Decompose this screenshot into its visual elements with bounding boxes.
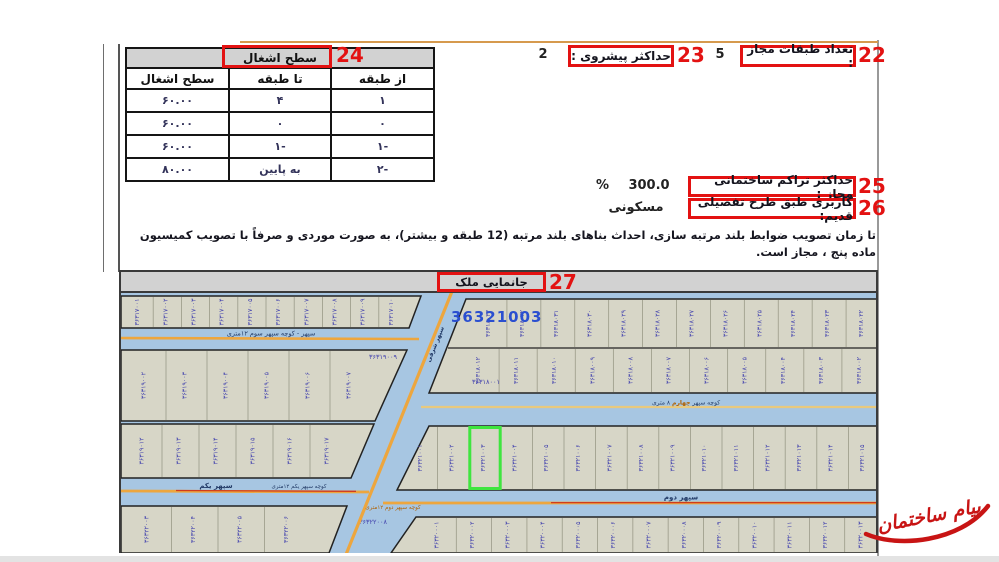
max-projection-value: 2 [528, 47, 558, 62]
highlight-parcel-big-label: 36321003 [451, 308, 543, 326]
parcel-number: ۳۶۳۱۸۰۱۰ [551, 357, 558, 384]
parcel-number: ۳۶۳۲۲۰۰۴ [190, 516, 197, 543]
callout-24: 24 [336, 43, 364, 67]
field-old-plan-usage-label: کاربری طبق طرح تفصیلی قدیم: [688, 198, 856, 219]
occupancy-cell: ۰ [229, 112, 331, 135]
parcel-number: ۳۶۳۲۱۰۱۱ [733, 444, 740, 471]
parcel-number: ۳۶۳۲۰۰۰۲ [469, 521, 476, 549]
parcel-number: ۳۶۳۱۹۰۱۶ [287, 437, 294, 464]
parcel-number: ۳۶۳۱۸۰۳۱ [553, 310, 560, 337]
parcel-number: ۳۶۳۱۹۰۱۵ [250, 437, 257, 465]
report-page: سطح اشغال از طبقه تا طبقه سطح اشغال ۱۴۶۰… [0, 0, 999, 562]
parcel-number: ۳۶۳۲۰۰۰۱ [434, 521, 441, 548]
parcel-number: ۳۶۳۱۸۰۲۶ [722, 310, 729, 337]
parcel-number: ۳۶۳۱۸۰۱۱ [513, 357, 520, 384]
parcel-number: ۳۶۳۲۱۰۰۹ [670, 444, 677, 472]
col-occupancy: سطح اشغال [126, 68, 229, 89]
parcel-number: ۳۶۳۱۷۰۰۶ [275, 298, 282, 325]
parcel-number: ۳۶۳۱۹۰۰۴ [223, 372, 230, 399]
watermark: پیام ساختمان [860, 486, 996, 552]
parcel-number: ۳۶۳۱۷۰۰۲ [162, 298, 169, 326]
old-plan-usage-label-text: کاربری طبق طرح تفصیلی قدیم: [691, 195, 853, 223]
parcel-number: ۳۶۳۲۱۰۱۳ [796, 444, 803, 472]
street-dovom-sublabel: کوچه سپهر دوم ۱۲متری [365, 504, 421, 511]
floors-allowed-label-text: تعداد طبقات مجاز : [743, 42, 853, 70]
parcel-number: ۳۶۳۲۱۰۱۰ [701, 444, 708, 471]
callout-box-occupancy-title [222, 45, 332, 68]
street-dovom-label: سپهر دوم [664, 494, 698, 502]
left-inner-border [118, 44, 120, 272]
parcel-number: ۳۶۳۱۸۰۰۳ [818, 356, 825, 384]
callout-23: 23 [677, 43, 705, 67]
parcel-number: ۳۶۳۲۱۰۰۲ [448, 444, 455, 472]
occupancy-cell: ۱- [229, 135, 331, 158]
occupancy-cell: ۶۰.۰۰ [126, 135, 229, 158]
parcel-number: ۳۶۳۱۸۰۰۴ [780, 357, 787, 384]
parcel-number: ۳۶۳۲۰۰۰۸ [681, 521, 688, 549]
parcel-number: ۳۶۳۲۱۰۱۲ [764, 444, 771, 472]
parcel-number: ۳۶۳۲۱۰۰۱ [417, 444, 424, 471]
highrise-note: تا زمان تصویب ضوابط بلند مرتبه سازی، احد… [125, 227, 876, 261]
field-floors-allowed-label: تعداد طبقات مجاز : [740, 45, 856, 67]
parcel-number: ۳۶۳۱۷۰۰۱ [134, 298, 141, 325]
callout-22: 22 [858, 43, 886, 67]
occupancy-cell: ۲- [331, 158, 434, 181]
parcel-block [121, 506, 347, 553]
parcel-block [391, 517, 878, 553]
parcel-number: ۳۶۳۱۸۰۲۸ [655, 309, 662, 337]
parcel-number: ۳۶۳۱۹۰۱۴ [213, 437, 220, 464]
parcel-number: ۳۶۳۲۱۰۰۳ [480, 444, 487, 472]
parcel-number: ۳۶۳۱۸۰۲۲ [858, 309, 865, 337]
site-plan-svg: ۳۶۳۱۷۰۰۱۳۶۳۱۷۰۰۲۳۶۳۱۷۰۰۳۳۶۳۱۷۰۰۴۳۶۳۱۷۰۰۵… [121, 293, 878, 553]
occupancy-cell: ۴ [229, 89, 331, 112]
parcel-number: ۳۶۳۲۱۰۰۵ [543, 444, 550, 472]
parcel-number: ۳۶۳۱۹۰۰۶ [305, 372, 312, 399]
parcel-number: ۳۶۳۱۸۰۲۴ [790, 310, 797, 337]
occupancy-cell: ۶۰.۰۰ [126, 89, 229, 112]
block-corner-label: ۳۶۳۱۸۰۰۱ [472, 378, 500, 386]
site-plan-section: ۳۶۳۱۷۰۰۱۳۶۳۱۷۰۰۲۳۶۳۱۷۰۰۳۳۶۳۱۷۰۰۴۳۶۳۱۷۰۰۵… [119, 270, 878, 553]
parcel-number: ۳۶۳۲۰۰۰۶ [610, 521, 617, 548]
parcel-number: ۳۶۳۲۰۰۱۱ [787, 521, 794, 548]
parcel-number: ۳۶۳۱۷۰۰۵ [247, 298, 254, 326]
watermark-text: پیام ساختمان [875, 495, 983, 537]
col-from-floor: از طبقه [331, 68, 434, 89]
parcel-number: ۳۶۳۲۰۰۰۵ [575, 521, 582, 549]
parcel-number: ۳۶۳۱۸۰۰۹ [589, 356, 596, 384]
block-corner-label: ۳۶۳۱۹۰۰۹ [369, 353, 397, 361]
parcel-number: ۳۶۳۲۲۰۰۵ [236, 515, 243, 543]
parcel-number: ۳۶۳۲۱۰۱۵ [859, 444, 866, 472]
callout-box-site-plan-title: جانمایی ملک [437, 272, 546, 292]
street-chaharom-label: کوچه سپهر چهارم ۸ متری [652, 400, 720, 407]
parcel-number: ۳۶۳۱۷۰۰۹ [360, 298, 367, 326]
occupancy-cell: به پایین [229, 158, 331, 181]
parcel-number: ۳۶۳۱۸۰۲۹ [621, 309, 628, 337]
parcel-number: ۳۶۳۱۷۰۱۰ [388, 298, 395, 325]
occupancy-cell: ۰ [331, 112, 434, 135]
max-density-unit: % [596, 178, 609, 193]
occupancy-cell: ۸۰.۰۰ [126, 158, 229, 181]
street-yekom-redline [176, 491, 356, 492]
occupancy-table-body: ۱۴۶۰.۰۰۰۰۶۰.۰۰۱-۱-۶۰.۰۰۲-به پایین۸۰.۰۰ [126, 89, 434, 181]
max-projection-label-text: حداکثر پیشروی : [571, 49, 671, 63]
street-yekom-sublabel: کوچه سپهر یکم ۱۲متری [272, 483, 327, 490]
old-plan-usage-value: مسکونی [606, 200, 666, 215]
callout-25: 25 [858, 174, 886, 198]
callout-26: 26 [858, 196, 886, 220]
parcel-number: ۳۶۳۱۸۰۲۵ [756, 309, 763, 337]
parcel-number: ۳۶۳۱۹۰۱۲ [139, 437, 146, 465]
parcel-number: ۳۶۳۲۱۰۰۶ [575, 444, 582, 471]
occupancy-cell: ۱ [331, 89, 434, 112]
parcel-number: ۳۶۳۲۰۰۰۷ [646, 521, 653, 549]
parcel-number: ۳۶۳۲۰۰۱۲ [822, 521, 829, 549]
parcel-number: ۳۶۳۲۱۰۰۴ [512, 444, 519, 471]
parcel-number: ۳۶۳۱۷۰۰۴ [219, 298, 226, 325]
parcel-number: ۳۶۳۱۸۰۲۳ [824, 309, 831, 337]
parcel-number: ۳۶۳۱۹۰۰۵ [264, 371, 271, 399]
parcel-number: ۳۶۳۱۹۰۱۷ [324, 437, 331, 465]
parcel-number: ۳۶۳۱۸۰۰۲ [856, 356, 863, 384]
max-density-value: 300.0 [628, 178, 670, 193]
site-plan-map: ۳۶۳۱۷۰۰۱۳۶۳۱۷۰۰۲۳۶۳۱۷۰۰۳۳۶۳۱۷۰۰۴۳۶۳۱۷۰۰۵… [119, 293, 878, 553]
parcel-number: ۳۶۳۱۹۰۰۳ [182, 371, 189, 399]
parcel-number: ۳۶۳۲۱۰۰۷ [606, 444, 613, 472]
parcel-number: ۳۶۳۲۲۰۰۳ [143, 515, 150, 543]
occupancy-cell: ۱- [331, 135, 434, 158]
parcel-number: ۳۶۳۲۰۰۰۳ [504, 521, 511, 549]
parcel-number: ۳۶۳۱۹۰۱۳ [176, 437, 183, 465]
parcel-number: ۳۶۳۲۲۰۰۶ [283, 516, 290, 543]
parcel-number: ۳۶۳۲۱۰۱۴ [828, 444, 835, 471]
street-sevvom-label: سپهر - کوچه سپهر سوم ۱۲متری [227, 330, 316, 338]
callout-27: 27 [549, 270, 577, 294]
block-corner-label: ۳۶۳۲۲۰۰۸ [359, 518, 387, 526]
parcel-number: ۳۶۳۲۰۰۱۰ [751, 521, 758, 548]
parcel-number: ۳۶۳۲۰۰۰۹ [716, 521, 723, 549]
parcel-number: ۳۶۳۱۸۰۰۶ [704, 357, 711, 384]
parcel-number: ۳۶۳۱۸۰۲۷ [689, 309, 696, 337]
col-to-floor: تا طبقه [229, 68, 331, 89]
floors-allowed-value: 5 [705, 47, 735, 62]
parcel-number: ۳۶۳۲۱۰۰۸ [638, 444, 645, 472]
parcel-block [121, 424, 374, 478]
parcel-number: ۳۶۳۱۷۰۰۸ [332, 298, 339, 326]
parcel-number: ۳۶۳۱۸۰۰۷ [666, 356, 673, 384]
street-sevvom-line [121, 338, 419, 339]
site-plan-title-text: جانمایی ملک [455, 275, 528, 289]
parcel-number: ۳۶۳۱۹۰۰۷ [346, 371, 353, 399]
parcel-number: ۳۶۳۱۸۰۰۸ [627, 356, 634, 384]
parcel-number: ۳۶۳۱۸۰۰۵ [742, 356, 749, 384]
parcel-number: ۳۶۳۱۹۰۰۲ [141, 371, 148, 399]
bottom-gray-strip [0, 556, 999, 562]
parcel-number: ۳۶۳۱۷۰۰۳ [191, 298, 198, 326]
field-max-projection-label: حداکثر پیشروی : [568, 45, 674, 67]
left-outer-border [103, 44, 104, 272]
street-yekom-label: سپهر یکم [199, 482, 232, 490]
parcel-number: ۳۶۳۲۰۰۰۴ [540, 521, 547, 548]
parcel-number: ۳۶۳۱۸۰۳۰ [587, 310, 594, 337]
parcel-number: ۳۶۳۱۷۰۰۷ [303, 298, 310, 326]
occupancy-cell: ۶۰.۰۰ [126, 112, 229, 135]
